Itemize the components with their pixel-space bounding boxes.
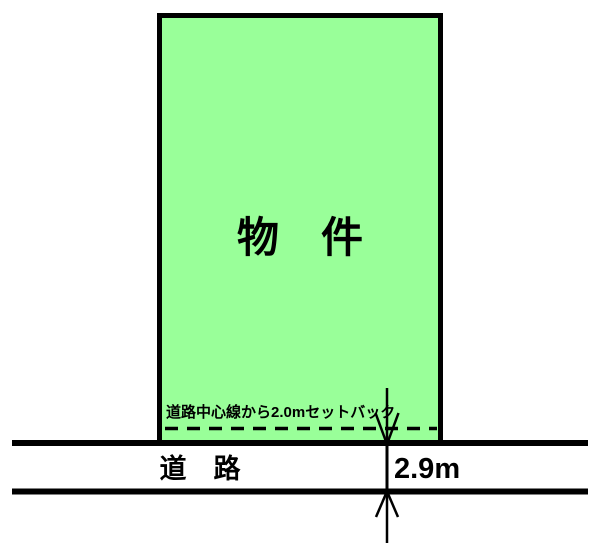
up-arrow-barb-left (376, 493, 387, 518)
road-width-label: 2.9m (394, 453, 460, 485)
setback-site-diagram: 物 件 道路中心線から2.0mセットバック 道 路 2.9m (0, 0, 600, 553)
up-arrow-barb-right (388, 493, 399, 518)
up-arrow-icon (376, 492, 398, 543)
road-label: 道 路 (160, 453, 242, 484)
property-label: 物 件 (237, 214, 363, 261)
diagram-canvas: 物 件 道路中心線から2.0mセットバック 道 路 2.9m (0, 0, 600, 553)
setback-label: 道路中心線から2.0mセットバック (166, 403, 395, 421)
